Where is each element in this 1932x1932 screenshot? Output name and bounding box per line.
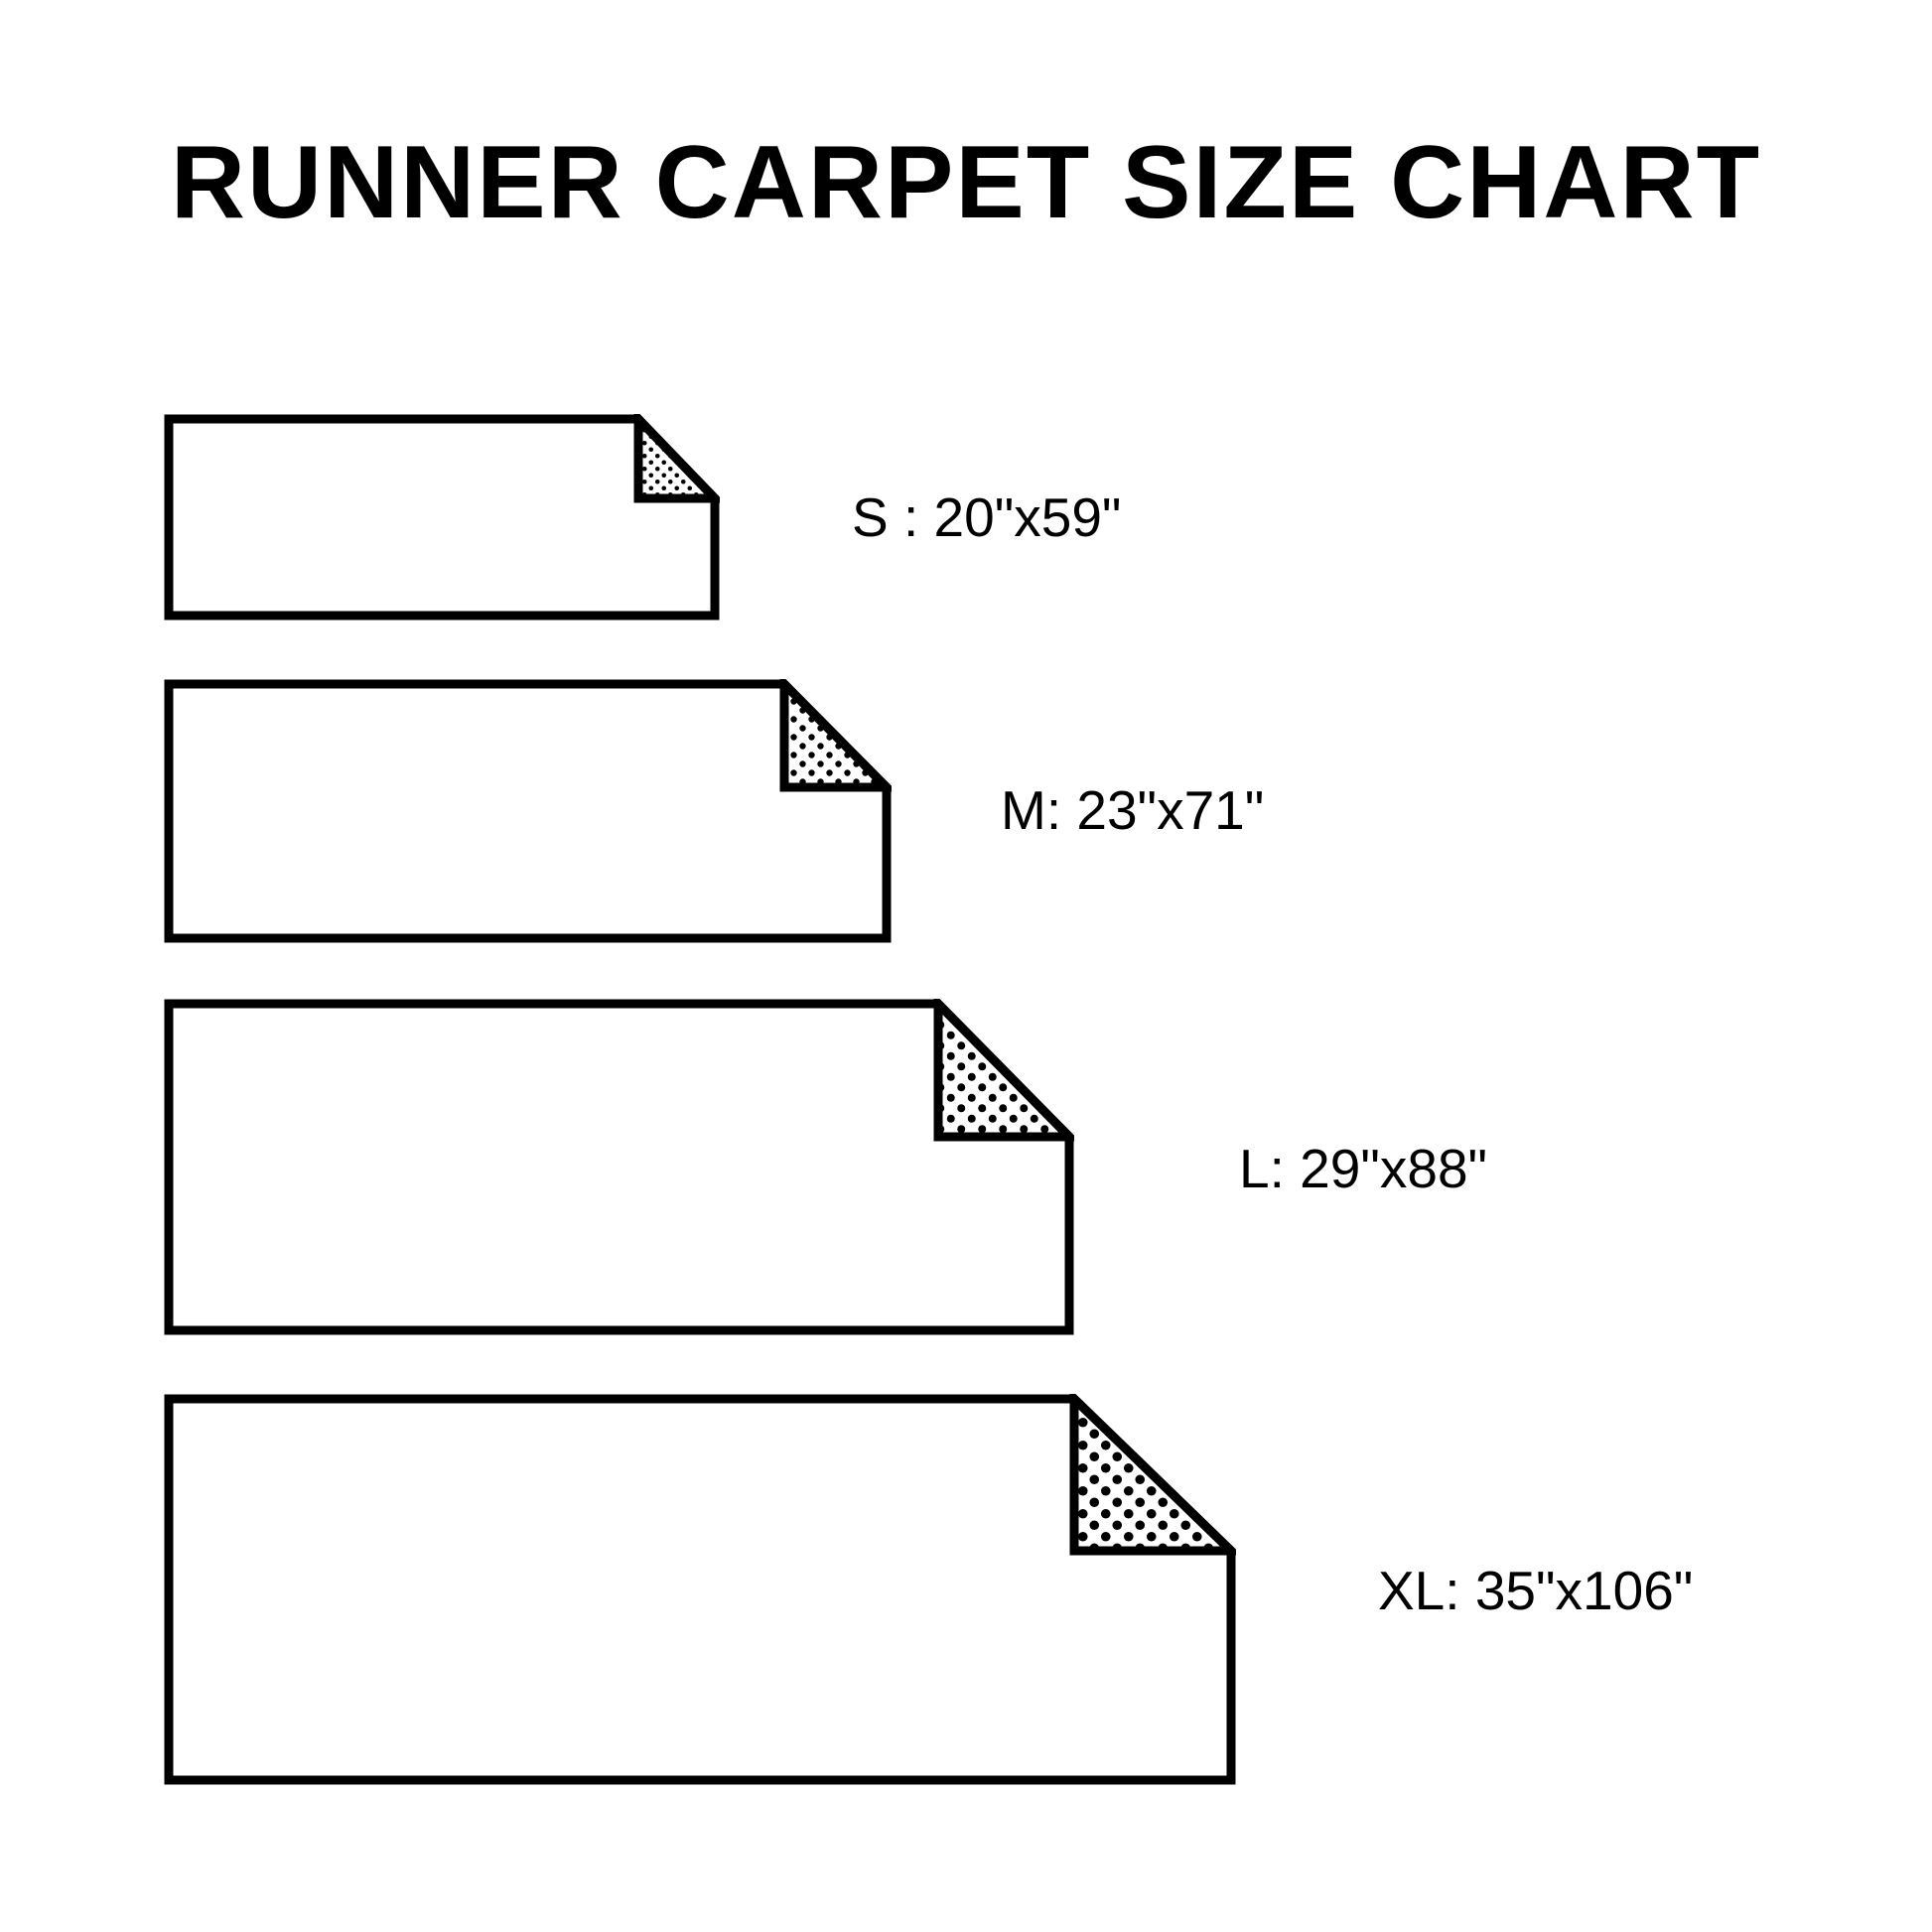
carpet-xl-shape bbox=[164, 1394, 1236, 1785]
size-label-l: L: 29"x88" bbox=[1239, 1142, 1487, 1196]
carpet-m-shape bbox=[164, 679, 892, 943]
carpet-diagram-m bbox=[164, 679, 892, 943]
folded-corner-icon bbox=[784, 684, 887, 787]
carpet-s-shape bbox=[164, 414, 720, 621]
folded-corner-icon bbox=[638, 419, 715, 498]
carpet-l-shape bbox=[164, 999, 1074, 1335]
folded-corner-icon bbox=[1074, 1399, 1231, 1551]
size-label-m: M: 23"x71" bbox=[1001, 783, 1264, 838]
size-label-s: S : 20"x59" bbox=[852, 490, 1121, 545]
carpet-diagram-s bbox=[164, 414, 720, 621]
carpet-diagram-l bbox=[164, 999, 1074, 1335]
carpet-outline bbox=[169, 684, 887, 938]
folded-corner-icon bbox=[938, 1004, 1069, 1137]
size-label-xl: XL: 35"x106" bbox=[1378, 1564, 1693, 1618]
runner-carpet-size-chart: RUNNER CARPET SIZE CHART S : 20"x59" bbox=[0, 0, 1932, 1932]
carpet-outline bbox=[169, 419, 715, 616]
page-title: RUNNER CARPET SIZE CHART bbox=[0, 131, 1932, 234]
carpet-diagram-xl bbox=[164, 1394, 1236, 1785]
